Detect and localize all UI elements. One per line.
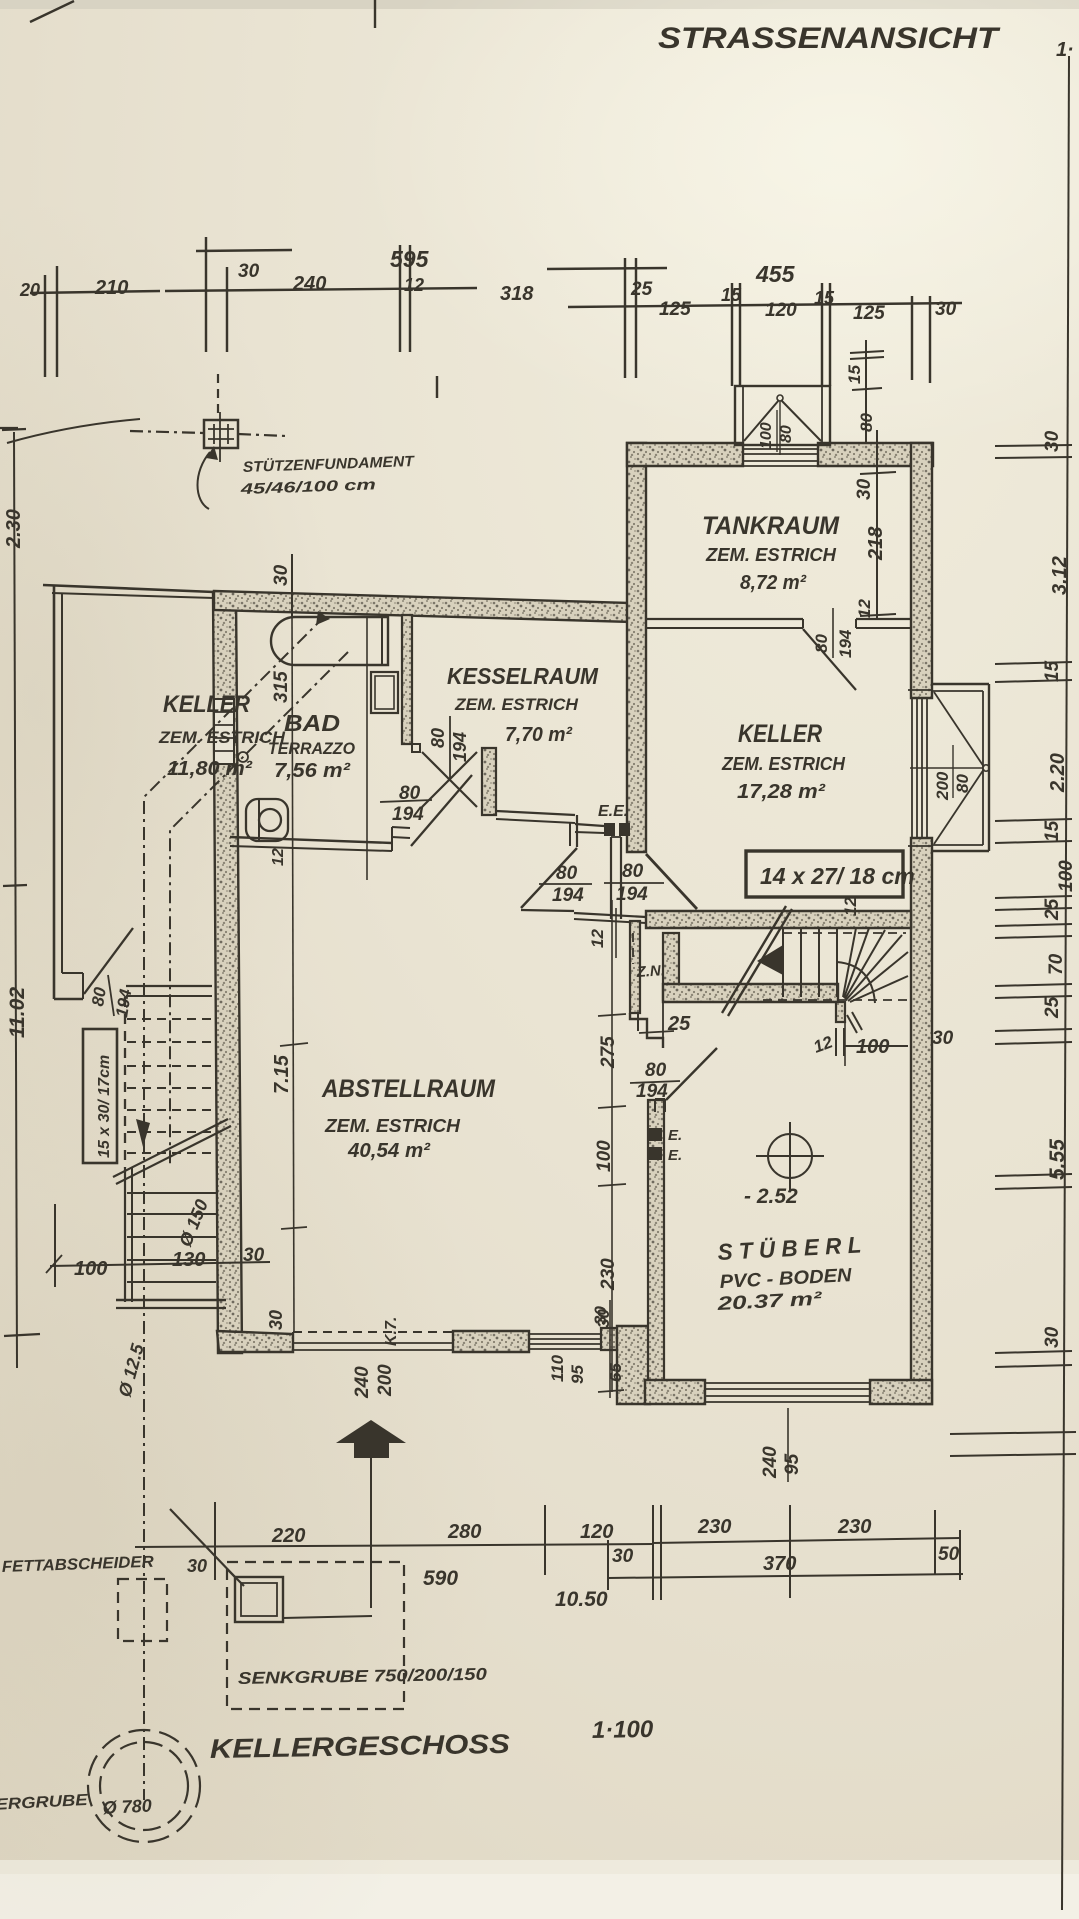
svg-text:194: 194 — [552, 885, 584, 906]
svg-text:KELLERGESCHOSS: KELLERGESCHOSS — [210, 1729, 510, 1764]
svg-text:7,56 m²: 7,56 m² — [274, 760, 351, 782]
svg-text:95: 95 — [782, 1453, 803, 1475]
svg-text:7.15: 7.15 — [271, 1054, 293, 1094]
svg-text:220: 220 — [271, 1525, 305, 1547]
svg-text:30: 30 — [243, 1245, 265, 1266]
svg-text:30: 30 — [935, 299, 957, 320]
svg-text:80: 80 — [556, 863, 578, 884]
svg-text:E.E.: E.E. — [598, 803, 628, 820]
svg-text:K.7.: K.7. — [383, 1317, 400, 1346]
svg-text:210: 210 — [94, 277, 128, 299]
svg-text:230: 230 — [837, 1516, 871, 1538]
svg-text:240: 240 — [292, 273, 326, 295]
svg-text:11.02: 11.02 — [6, 987, 29, 1038]
svg-text:15: 15 — [1042, 660, 1063, 682]
svg-text:455: 455 — [755, 261, 796, 287]
svg-text:100: 100 — [594, 1140, 615, 1172]
svg-text:230: 230 — [697, 1516, 731, 1538]
svg-text:275: 275 — [598, 1036, 619, 1069]
svg-text:30: 30 — [612, 1546, 634, 1567]
svg-text:15 x 30/ 17cm: 15 x 30/ 17cm — [96, 1055, 113, 1158]
svg-text:- 2.52: - 2.52 — [744, 1185, 798, 1208]
svg-text:TANKRAUM: TANKRAUM — [702, 512, 840, 540]
svg-text:KELLER: KELLER — [738, 720, 822, 748]
svg-text:1·: 1· — [1056, 39, 1074, 61]
svg-text:100: 100 — [74, 1258, 107, 1280]
svg-text:80: 80 — [622, 861, 644, 882]
svg-text:12: 12 — [841, 897, 860, 916]
svg-text:ZEM. ESTRICH: ZEM. ESTRICH — [721, 754, 846, 774]
svg-text:65: 65 — [606, 1363, 625, 1382]
svg-text:194: 194 — [392, 804, 424, 825]
svg-text:100: 100 — [856, 1036, 889, 1058]
svg-text:ZEM. ESTRICH: ZEM. ESTRICH — [705, 545, 837, 565]
svg-text:370: 370 — [763, 1553, 796, 1575]
svg-text:STRASSENANSICHT: STRASSENANSICHT — [658, 22, 1001, 55]
svg-text:1·100: 1·100 — [592, 1716, 654, 1744]
svg-text:KESSELRAUM: KESSELRAUM — [447, 663, 599, 689]
svg-text:80: 80 — [778, 425, 795, 443]
svg-text:595: 595 — [390, 246, 430, 272]
svg-text:194: 194 — [836, 629, 855, 658]
svg-text:70: 70 — [1046, 953, 1067, 975]
svg-text:Z.N.: Z.N. — [635, 962, 665, 981]
svg-text:80: 80 — [645, 1060, 667, 1081]
svg-text:95: 95 — [568, 1365, 587, 1384]
svg-text:Ø 780: Ø 780 — [102, 1795, 152, 1818]
svg-text:194: 194 — [450, 732, 470, 762]
svg-text:TERRAZZO: TERRAZZO — [268, 739, 355, 758]
svg-text:ABSTELLRAUM: ABSTELLRAUM — [321, 1075, 496, 1103]
svg-text:30: 30 — [1042, 430, 1063, 452]
svg-text:12: 12 — [270, 848, 287, 866]
svg-text:ZEM. ESTRICH: ZEM. ESTRICH — [324, 1116, 461, 1136]
svg-text:30: 30 — [238, 261, 260, 282]
svg-text:125: 125 — [659, 299, 691, 320]
svg-text:20: 20 — [19, 280, 40, 300]
svg-text:14 x 27/ 18 cm: 14 x 27/ 18 cm — [760, 863, 915, 889]
svg-text:590: 590 — [423, 1567, 458, 1590]
svg-text:15: 15 — [721, 285, 742, 305]
svg-text:15: 15 — [1042, 820, 1063, 842]
svg-text:8,72 m²: 8,72 m² — [740, 572, 807, 594]
svg-text:15: 15 — [814, 288, 835, 308]
svg-text:80: 80 — [857, 413, 876, 432]
svg-text:25: 25 — [1042, 898, 1063, 921]
svg-text:120: 120 — [580, 1521, 613, 1543]
svg-text:200: 200 — [933, 771, 952, 801]
svg-text:2.20: 2.20 — [1047, 753, 1069, 793]
svg-text:218: 218 — [865, 526, 887, 561]
svg-text:15: 15 — [845, 365, 864, 384]
svg-text:100: 100 — [758, 422, 775, 449]
svg-text:80: 80 — [812, 634, 831, 653]
svg-text:ZEM. ESTRICH: ZEM. ESTRICH — [454, 695, 579, 714]
svg-text:50: 50 — [938, 1544, 960, 1565]
svg-text:3.12: 3.12 — [1049, 556, 1071, 595]
svg-text:125: 125 — [853, 303, 885, 324]
svg-text:17,28 m²: 17,28 m² — [737, 781, 826, 803]
svg-text:5.55: 5.55 — [1046, 1139, 1069, 1180]
svg-text:80: 80 — [953, 774, 972, 793]
svg-text:12: 12 — [855, 599, 874, 618]
svg-text:ZEM. ESTRICH: ZEM. ESTRICH — [158, 728, 286, 747]
svg-text:30: 30 — [266, 1310, 286, 1330]
svg-text:315: 315 — [271, 671, 292, 703]
svg-text:12: 12 — [404, 275, 424, 295]
svg-text:E.: E. — [668, 1147, 682, 1164]
svg-text:12: 12 — [588, 929, 607, 948]
svg-text:318: 318 — [500, 283, 534, 305]
svg-text:25: 25 — [1042, 996, 1063, 1019]
svg-text:230: 230 — [598, 1258, 619, 1291]
svg-text:30: 30 — [271, 564, 292, 586]
svg-text:280: 280 — [447, 1521, 481, 1543]
svg-text:240: 240 — [760, 1446, 781, 1479]
svg-text:7,70 m²: 7,70 m² — [505, 724, 573, 746]
svg-text:E.: E. — [668, 1127, 682, 1144]
svg-text:30: 30 — [591, 1306, 610, 1325]
svg-text:110: 110 — [548, 1354, 567, 1382]
svg-text:30: 30 — [854, 478, 875, 500]
svg-text:30: 30 — [932, 1028, 954, 1049]
svg-text:10.50: 10.50 — [555, 1588, 608, 1611]
svg-text:80: 80 — [88, 985, 110, 1007]
svg-text:240: 240 — [352, 1366, 373, 1399]
svg-text:194: 194 — [636, 1081, 668, 1102]
svg-text:2.30: 2.30 — [3, 509, 25, 549]
svg-text:130: 130 — [172, 1249, 205, 1271]
svg-text:80: 80 — [428, 728, 448, 748]
svg-text:200: 200 — [375, 1364, 396, 1397]
svg-text:30: 30 — [187, 1556, 207, 1576]
svg-text:120: 120 — [765, 300, 797, 321]
svg-text:40,54 m²: 40,54 m² — [347, 1140, 431, 1162]
svg-text:100: 100 — [1056, 860, 1077, 892]
svg-text:30: 30 — [1042, 1326, 1063, 1348]
svg-text:25: 25 — [630, 279, 653, 300]
